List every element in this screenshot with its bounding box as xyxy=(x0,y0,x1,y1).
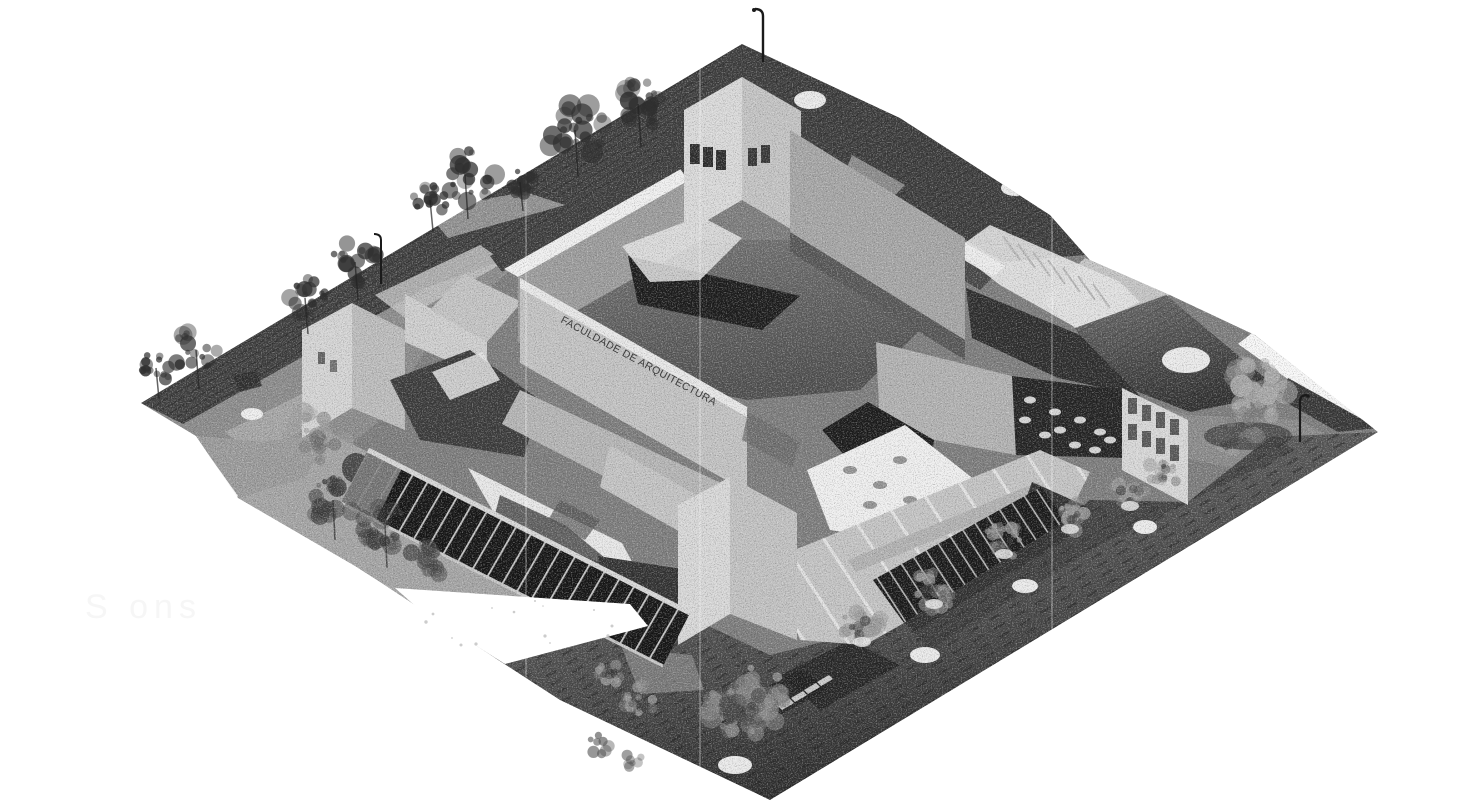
svg-text:S ons: S ons xyxy=(85,588,202,626)
